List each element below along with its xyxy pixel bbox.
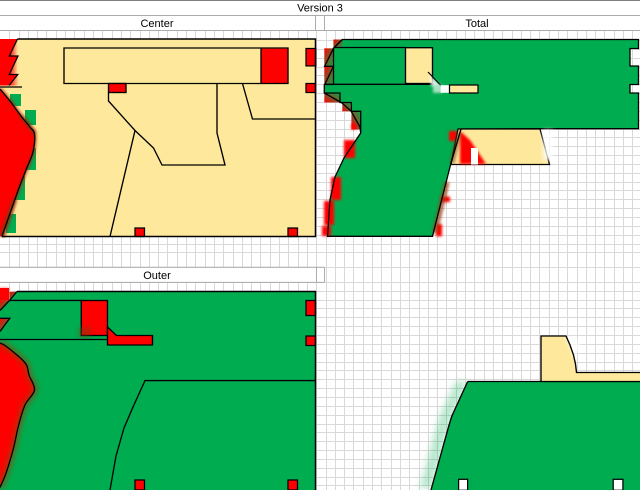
svg-text:Outer: Outer: [143, 270, 171, 282]
svg-text:Version 3: Version 3: [297, 3, 343, 15]
svg-text:Center: Center: [140, 18, 173, 30]
svg-text:Total: Total: [465, 18, 488, 30]
